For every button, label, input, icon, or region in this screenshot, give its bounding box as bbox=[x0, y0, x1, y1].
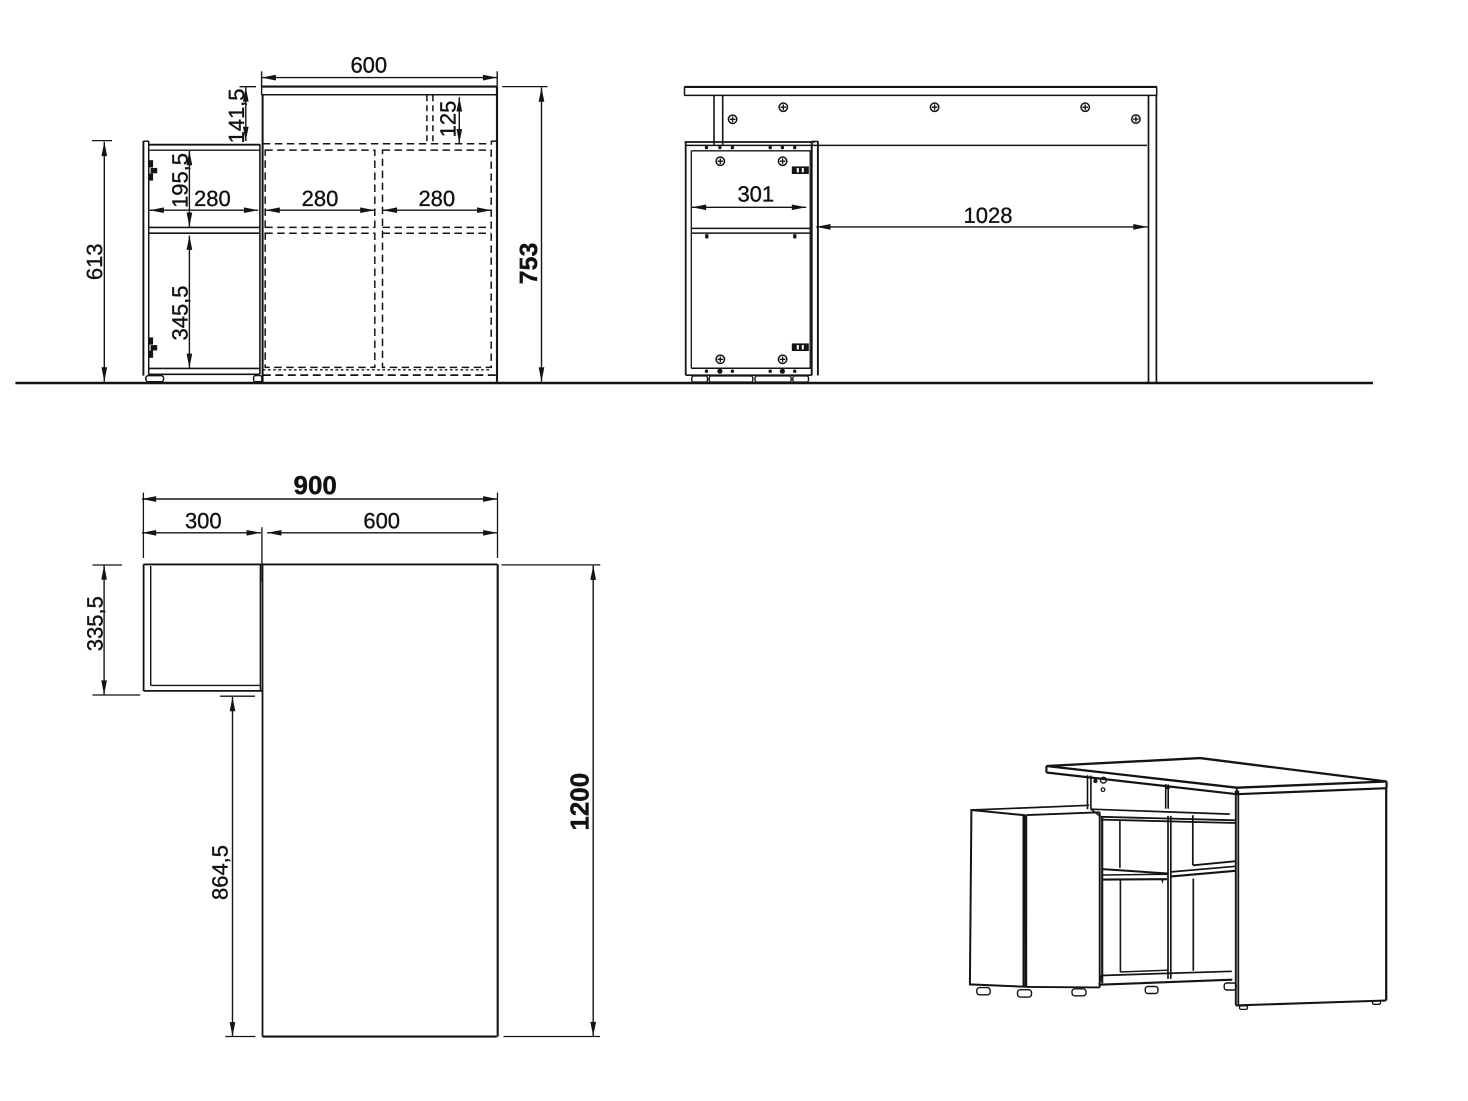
svg-text:280: 280 bbox=[194, 186, 231, 211]
svg-text:753: 753 bbox=[515, 243, 543, 285]
svg-text:900: 900 bbox=[294, 470, 337, 500]
svg-text:301: 301 bbox=[737, 181, 774, 206]
svg-text:1028: 1028 bbox=[964, 203, 1013, 228]
svg-text:300: 300 bbox=[185, 508, 222, 533]
svg-text:613: 613 bbox=[82, 243, 107, 280]
svg-text:280: 280 bbox=[302, 186, 339, 211]
svg-text:1200: 1200 bbox=[565, 773, 595, 831]
svg-text:125: 125 bbox=[436, 101, 461, 138]
svg-text:600: 600 bbox=[363, 508, 400, 533]
svg-text:864,5: 864,5 bbox=[208, 845, 233, 900]
svg-text:141,5: 141,5 bbox=[224, 88, 249, 143]
svg-text:195,5: 195,5 bbox=[167, 153, 192, 208]
svg-text:280: 280 bbox=[418, 186, 455, 211]
svg-text:600: 600 bbox=[350, 52, 387, 77]
